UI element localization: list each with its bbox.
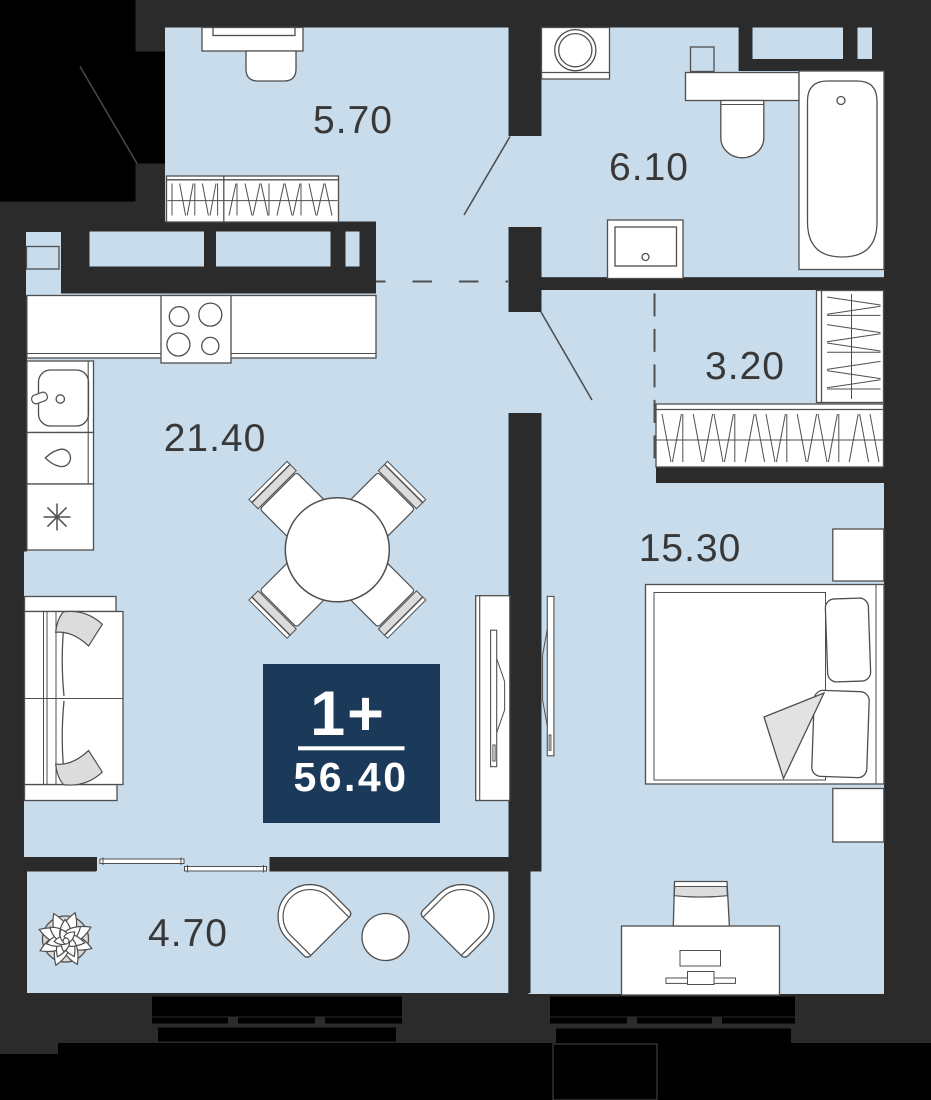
- svg-text:6.10: 6.10: [609, 146, 689, 189]
- svg-text:4.70: 4.70: [148, 912, 228, 955]
- svg-text:56.40: 56.40: [293, 754, 408, 800]
- svg-text:15.30: 15.30: [639, 527, 742, 570]
- svg-text:21.40: 21.40: [164, 417, 267, 460]
- svg-text:1+: 1+: [310, 679, 386, 749]
- svg-text:5.70: 5.70: [313, 99, 393, 142]
- svg-text:3.20: 3.20: [705, 345, 785, 388]
